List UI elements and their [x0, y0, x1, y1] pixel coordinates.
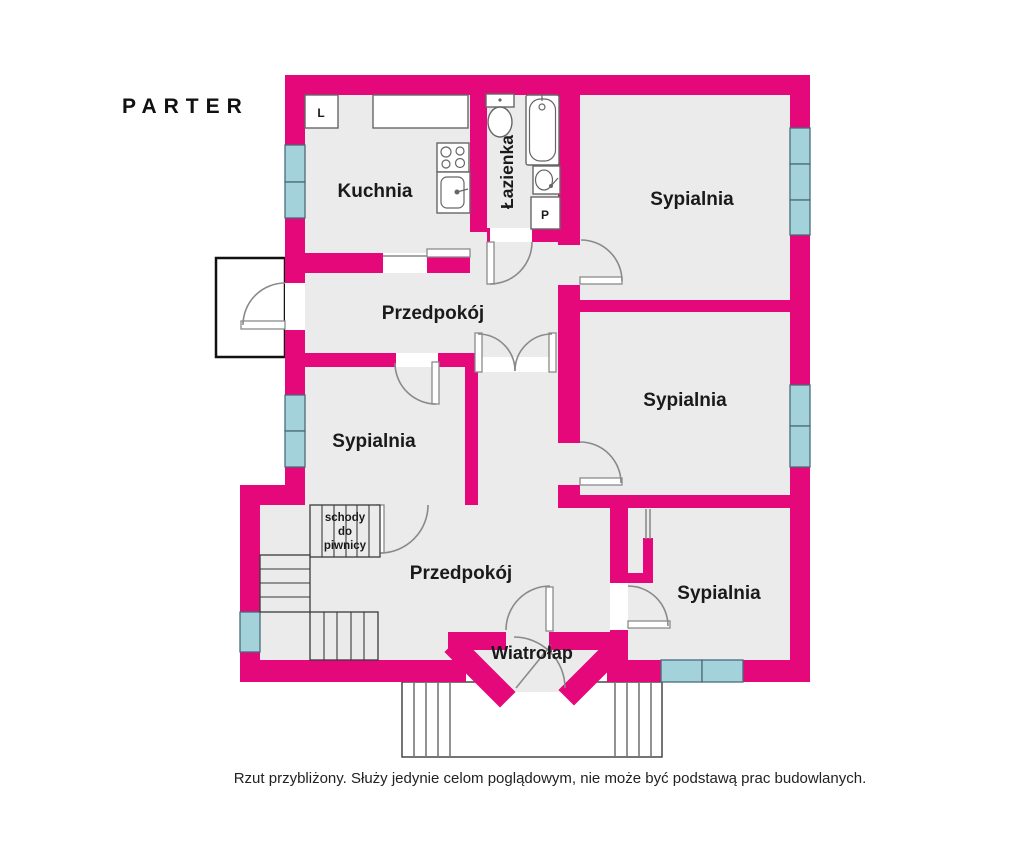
window-bedroom-left	[285, 395, 305, 431]
room-label-bedroom-top-right: Sypialnia	[650, 189, 734, 210]
toilet-icon	[486, 94, 514, 137]
bathtub-icon	[526, 95, 559, 165]
room-label-hallway-upper: Przedpokój	[382, 303, 484, 324]
washing-machine-label: P	[541, 208, 549, 222]
room-label-vestibule: Wiatrołap	[491, 643, 573, 663]
basement-stairs-label-2: do	[338, 526, 352, 538]
room-label-bedroom-bottom-right: Sypialnia	[677, 583, 761, 604]
room-label-bedroom-left: Sypialnia	[332, 431, 416, 452]
fridge-label: L	[317, 106, 324, 120]
opening-bathroom	[490, 228, 532, 242]
wall-corridor-right-upper	[558, 285, 580, 443]
wall-top	[285, 75, 810, 95]
window-kitchen	[285, 145, 305, 182]
wall-kitchen-bath	[470, 95, 487, 232]
wall-bottom-left	[240, 660, 466, 682]
window-bedroom-middle-right	[790, 385, 810, 426]
wall-corridor-left	[465, 353, 478, 505]
room-label-hallway-lower: Przedpokój	[410, 563, 512, 584]
kitchen-sink-icon	[437, 172, 470, 213]
floor-plan-page: PARTER	[0, 0, 1024, 855]
wall-bedroom-left-top	[285, 353, 478, 367]
wall-bath-bedroom	[558, 95, 580, 245]
basement-stairs-label-3: piwnicy	[324, 540, 367, 552]
kitchen-counter-icon	[373, 95, 468, 128]
wall-bedrooms-divider-upper	[580, 300, 810, 312]
corner-staircase-upper-flight	[260, 555, 310, 612]
room-label-bathroom: Łazienka	[497, 135, 517, 209]
window-bedroom-bottom-right	[661, 660, 702, 682]
washing-machine-icon: P	[531, 197, 560, 229]
page-title: PARTER	[122, 95, 249, 118]
room-label-kitchen: Kuchnia	[338, 181, 413, 202]
room-label-bedroom-middle-right: Sypialnia	[643, 390, 727, 411]
entrance-steps	[402, 682, 662, 757]
stove-icon	[437, 143, 469, 172]
window-bedroom-top-right	[790, 128, 810, 164]
disclaimer-text: Rzut przybliżony. Służy jedynie celom po…	[234, 770, 867, 787]
washbasin-icon	[533, 166, 560, 194]
wall-bedroom4-left-upper	[610, 508, 628, 573]
porch-outline	[216, 258, 285, 357]
basement-stairs-label-1: schody	[325, 512, 366, 524]
window-hallway-lower	[240, 612, 260, 652]
wall-closet-bottom	[610, 573, 653, 583]
opening-entrance	[285, 283, 305, 330]
floor-plan-canvas: PARTER	[0, 0, 1024, 855]
opening-bedroom-bottom	[610, 583, 628, 630]
corner-staircase-lower-flight	[310, 612, 378, 660]
wall-bedrooms-divider-lower	[558, 495, 810, 508]
